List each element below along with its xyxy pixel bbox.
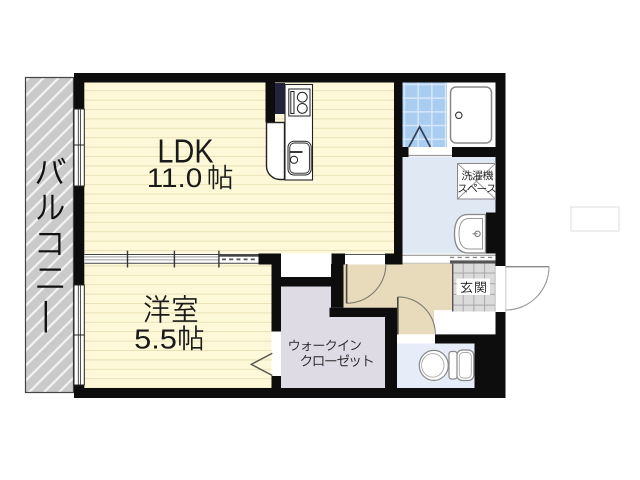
svg-text:11.0: 11.0 — [147, 163, 203, 192]
svg-text:5.5: 5.5 — [134, 324, 177, 355]
